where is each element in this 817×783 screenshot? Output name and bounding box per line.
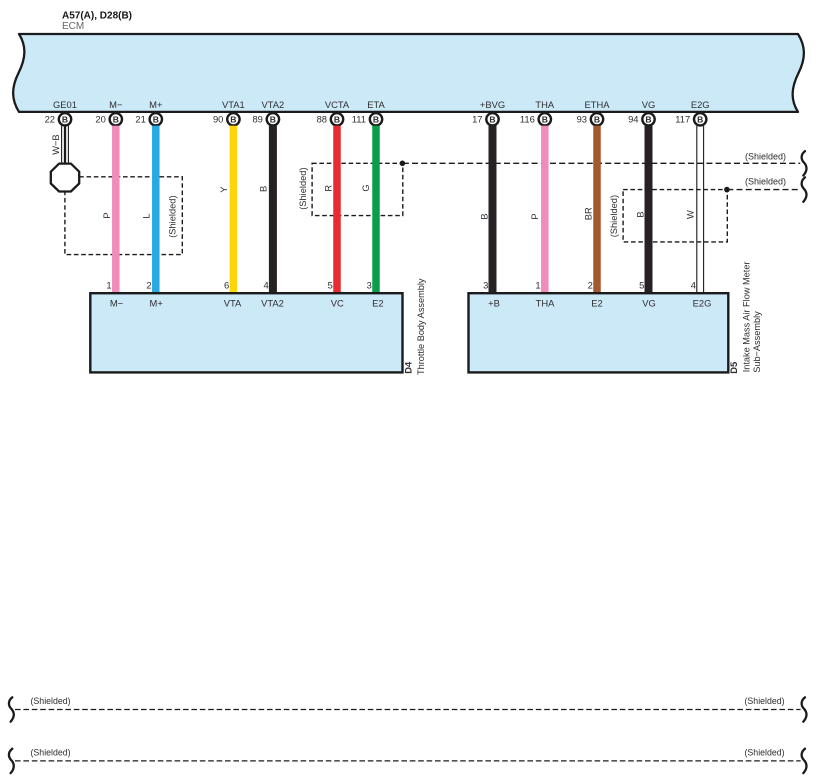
svg-text:B: B	[542, 115, 548, 125]
svg-text:B: B	[230, 115, 236, 125]
svg-text:88: 88	[317, 114, 327, 125]
svg-text:M−: M−	[109, 99, 123, 110]
svg-text:116: 116	[520, 114, 535, 125]
svg-text:E2: E2	[372, 297, 383, 308]
svg-text:+BVG: +BVG	[480, 99, 505, 110]
svg-text:B: B	[479, 213, 489, 219]
svg-text:(Shielded): (Shielded)	[745, 748, 785, 758]
svg-text:+B: +B	[488, 297, 500, 308]
svg-text:VCTA: VCTA	[325, 99, 350, 110]
svg-text:20: 20	[95, 114, 105, 125]
svg-text:G: G	[361, 184, 371, 191]
svg-text:M+: M+	[149, 99, 163, 110]
svg-text:B: B	[270, 115, 276, 125]
svg-text:W−B: W−B	[51, 134, 61, 154]
svg-text:(Shielded): (Shielded)	[745, 177, 786, 187]
svg-text:(Shielded): (Shielded)	[745, 696, 785, 706]
svg-text:(Shielded): (Shielded)	[745, 151, 786, 161]
svg-text:R: R	[324, 185, 334, 192]
svg-text:B: B	[594, 115, 600, 125]
svg-text:D4: D4	[403, 361, 414, 374]
svg-text:M−: M−	[110, 297, 124, 308]
svg-text:B: B	[113, 115, 119, 125]
svg-text:L: L	[142, 213, 152, 218]
svg-text:1: 1	[106, 280, 111, 291]
svg-text:BR: BR	[584, 207, 594, 220]
svg-text:(Shielded): (Shielded)	[609, 195, 619, 237]
svg-text:VTA1: VTA1	[222, 99, 245, 110]
svg-text:ECM: ECM	[62, 21, 84, 32]
svg-text:(Shielded): (Shielded)	[168, 195, 178, 237]
svg-text:(Shielded): (Shielded)	[31, 748, 71, 758]
svg-text:VTA2: VTA2	[262, 99, 285, 110]
svg-text:B: B	[62, 115, 68, 125]
svg-text:E2G: E2G	[691, 99, 710, 110]
svg-text:(Shielded): (Shielded)	[298, 167, 308, 209]
svg-text:P: P	[530, 213, 540, 219]
svg-text:B: B	[697, 115, 703, 125]
svg-text:Throttle Body Assembly: Throttle Body Assembly	[416, 278, 426, 375]
svg-text:VG: VG	[642, 99, 656, 110]
svg-text:W: W	[685, 210, 695, 219]
svg-text:VC: VC	[331, 297, 344, 308]
svg-text:93: 93	[577, 114, 587, 125]
svg-text:ETHA: ETHA	[584, 99, 610, 110]
svg-text:Sub−Assembly: Sub−Assembly	[752, 311, 762, 373]
svg-text:B: B	[373, 115, 379, 125]
svg-text:Y: Y	[219, 187, 229, 193]
svg-text:A57(A), D28(B): A57(A), D28(B)	[62, 11, 132, 22]
svg-text:E2G: E2G	[693, 297, 712, 308]
svg-text:(Shielded): (Shielded)	[31, 696, 71, 706]
svg-text:P: P	[102, 212, 112, 218]
svg-text:THA: THA	[536, 297, 555, 308]
svg-text:B: B	[489, 115, 495, 125]
svg-text:3: 3	[367, 280, 372, 291]
svg-text:5: 5	[639, 280, 644, 291]
svg-text:VG: VG	[642, 297, 656, 308]
svg-text:B: B	[635, 211, 645, 217]
svg-text:4: 4	[263, 280, 268, 291]
svg-text:1: 1	[535, 280, 540, 291]
svg-text:22: 22	[45, 114, 55, 125]
svg-text:2: 2	[146, 280, 151, 291]
svg-text:Intake Mass Air Flow Meter: Intake Mass Air Flow Meter	[742, 262, 752, 373]
svg-text:B: B	[153, 115, 159, 125]
svg-text:6: 6	[224, 280, 229, 291]
svg-text:117: 117	[675, 114, 690, 125]
svg-text:ETA: ETA	[367, 99, 385, 110]
svg-text:2: 2	[588, 280, 593, 291]
svg-text:B: B	[334, 115, 340, 125]
svg-text:94: 94	[628, 114, 638, 125]
svg-text:VTA: VTA	[224, 297, 242, 308]
svg-text:21: 21	[135, 114, 145, 125]
svg-text:E2: E2	[591, 297, 602, 308]
svg-text:B: B	[258, 186, 268, 192]
svg-text:GE01: GE01	[53, 99, 77, 110]
svg-text:D5: D5	[728, 362, 739, 374]
svg-text:5: 5	[328, 280, 333, 291]
svg-text:THA: THA	[535, 99, 554, 110]
svg-text:17: 17	[472, 114, 482, 125]
svg-text:90: 90	[213, 114, 223, 125]
svg-text:M+: M+	[150, 297, 164, 308]
svg-text:89: 89	[252, 114, 262, 125]
svg-text:111: 111	[352, 114, 366, 125]
svg-text:3: 3	[483, 280, 488, 291]
svg-text:VTA2: VTA2	[261, 297, 284, 308]
svg-text:4: 4	[691, 280, 696, 291]
svg-text:B: B	[645, 115, 651, 125]
